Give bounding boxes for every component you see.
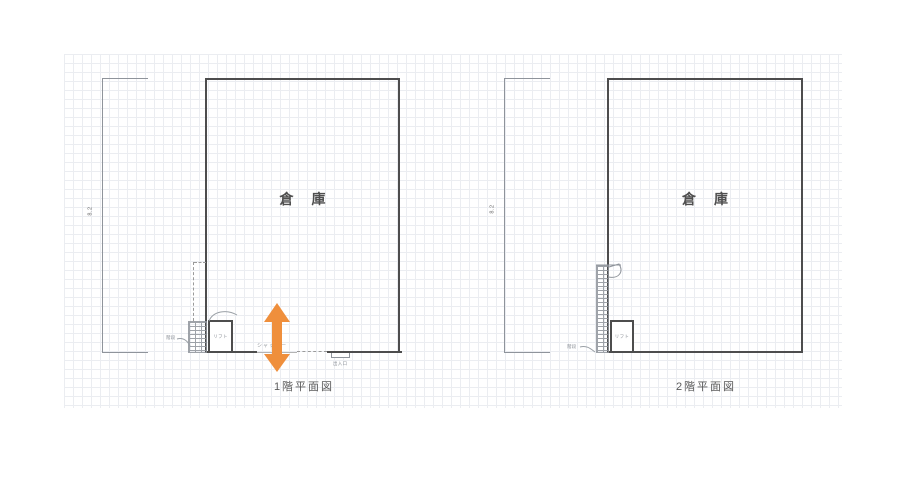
lift-box: リフト [208, 320, 233, 353]
stair-projection-dashed-line [194, 262, 206, 263]
room-label-warehouse: 倉庫 [607, 189, 803, 209]
stairs-label: 階段 [166, 335, 176, 341]
lift-box: リフト [610, 320, 634, 353]
dashed-wall-segment [297, 351, 327, 352]
stair-projection-dashed-line [193, 262, 194, 321]
plan-caption-2f: 2階平面図 [605, 378, 805, 394]
warehouse-outline-1f [205, 78, 400, 351]
floor-plan-drawing: 8.2 出入口 リフト 階段 シャッター 倉庫 1階平面図 8.2 [0, 0, 900, 490]
door-symbol [331, 353, 350, 358]
warehouse-outline-2f [607, 78, 803, 353]
dimension-line-vertical [504, 78, 505, 353]
plan-caption-1f: 1階平面図 [203, 378, 403, 394]
dimension-tick-top [504, 78, 550, 79]
door-label: 出入口 [333, 361, 347, 367]
dimension-label: 8.2 [490, 204, 496, 213]
dimension-tick-top [102, 78, 148, 79]
dimension-tick-bottom [504, 352, 550, 353]
stairs-label: 階段 [567, 344, 577, 350]
stairs-symbol [188, 321, 207, 353]
lift-label: リフト [213, 334, 227, 340]
lift-label: リフト [615, 334, 629, 340]
dimension-line-vertical [102, 78, 103, 353]
stairs-symbol [596, 265, 609, 353]
dimension-label: 8.2 [88, 206, 94, 215]
shutter-opening-line [257, 352, 297, 353]
shutter-label: シャッター [257, 342, 287, 349]
room-label-warehouse: 倉庫 [205, 189, 400, 209]
dimension-tick-bottom [102, 352, 148, 353]
